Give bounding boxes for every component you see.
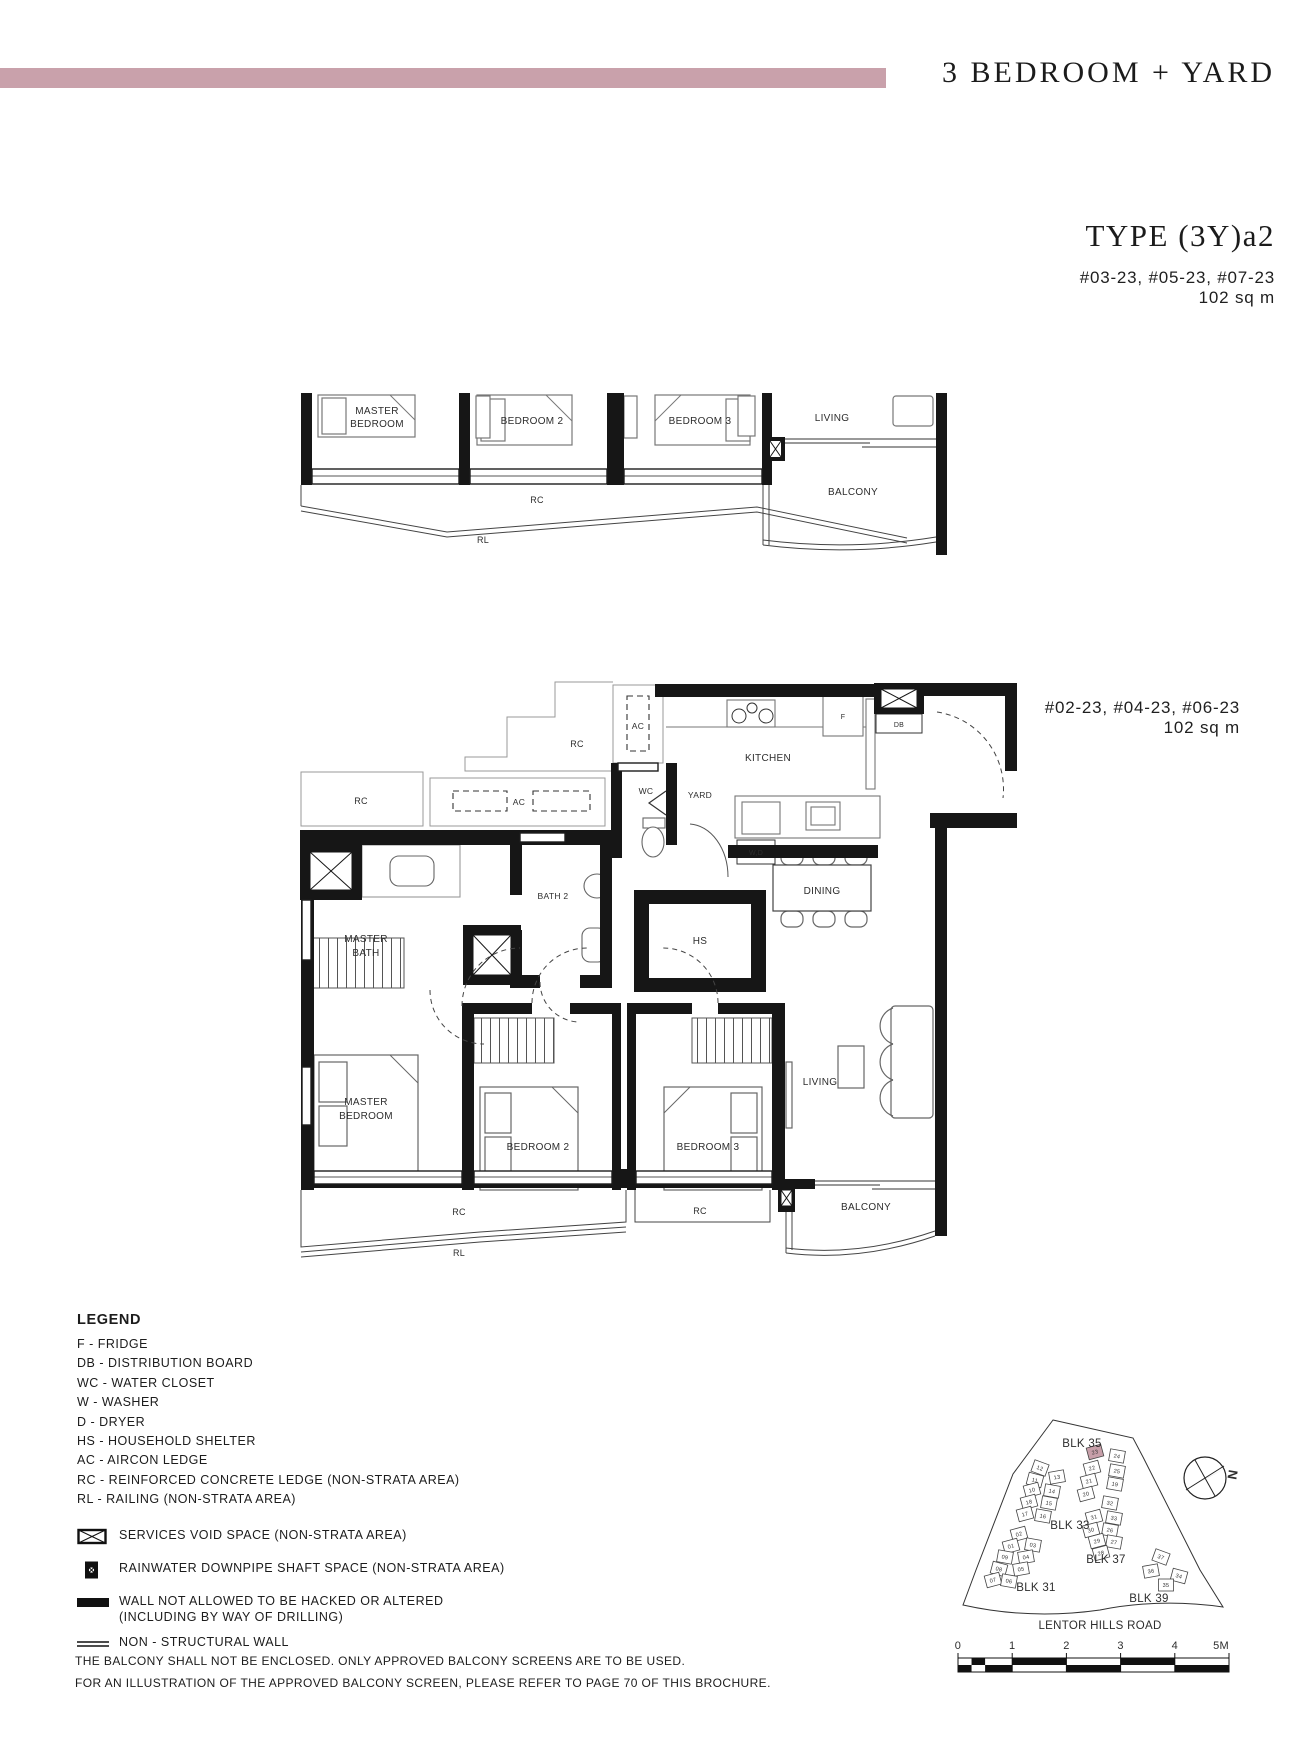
legend-item: AC - AIRCON LEDGE — [77, 1451, 697, 1470]
road-label: LENTOR HILLS ROAD — [1038, 1620, 1161, 1632]
label-top-master-1: MASTER — [355, 406, 398, 417]
scale-tick-label: 5M — [1213, 1640, 1229, 1652]
site-unit: 19 — [1107, 1477, 1124, 1491]
label-top-living: LIVING — [815, 413, 850, 424]
legend-symbol-label-line2: (INCLUDING BY WAY OF DRILLING) — [119, 1609, 443, 1625]
label-master-bath-1: MASTER — [344, 934, 387, 945]
legend-symbol-row: RAINWATER DOWNPIPE SHAFT SPACE (NON-STRA… — [77, 1560, 697, 1584]
label-balcony: BALCONY — [841, 1202, 891, 1213]
legend-symbol-label-line1: WALL NOT ALLOWED TO BE HACKED OR ALTERED — [119, 1593, 443, 1609]
footnote-line: FOR AN ILLUSTRATION OF THE APPROVED BALC… — [75, 1672, 771, 1694]
label-rc-box: RC — [354, 796, 368, 806]
legend: LEGEND F - FRIDGE DB - DISTRIBUTION BOAR… — [77, 1312, 697, 1667]
label-dining: DINING — [804, 886, 841, 897]
legend-item: RC - REINFORCED CONCRETE LEDGE (NON-STRA… — [77, 1471, 697, 1490]
hacked-wall-icon — [77, 1593, 119, 1617]
legend-item: HS - HOUSEHOLD SHELTER — [77, 1432, 697, 1451]
site-unit: 25 — [1109, 1464, 1126, 1478]
site-unit-number: 33 — [1110, 1515, 1118, 1522]
label-rc-left: RC — [452, 1207, 466, 1217]
site-unit-number: 27 — [1110, 1539, 1118, 1546]
north-compass-icon: N — [1184, 1457, 1241, 1499]
site-unit-number: 09 — [1001, 1554, 1009, 1561]
label-rc-right: RC — [693, 1206, 707, 1216]
label-washer-dryer: W,D — [749, 850, 763, 857]
site-unit-number: 13 — [1053, 1474, 1061, 1481]
legend-symbol-label: SERVICES VOID SPACE (NON-STRATA AREA) — [119, 1527, 407, 1543]
site-unit: 13 — [1049, 1470, 1066, 1484]
label-top-rl: RL — [477, 535, 489, 545]
scale-tick-label: 3 — [1117, 1640, 1123, 1652]
label-bath2: BATH 2 — [538, 891, 569, 901]
label-bedroom3: BEDROOM 3 — [677, 1142, 740, 1153]
site-unit-number: 16 — [1039, 1513, 1047, 1520]
site-unit: 21 — [1080, 1473, 1098, 1488]
label-kitchen: KITCHEN — [745, 753, 791, 764]
site-block-label: BLK 39 — [1129, 1593, 1169, 1605]
services-void-icon — [77, 1527, 119, 1551]
label-top-master-2: BEDROOM — [350, 419, 404, 430]
site-unit: 16 — [1035, 1509, 1052, 1523]
site-block-label: BLK 37 — [1086, 1554, 1126, 1566]
site-units: 2324222521192032313330262927283736343512… — [984, 1444, 1188, 1591]
label-master-bedroom-1: MASTER — [344, 1097, 387, 1108]
brochure-page: 3 BEDROOM + YARD TYPE (3Y)a2 #03-23, #05… — [0, 0, 1298, 1745]
site-unit: 17 — [1016, 1506, 1034, 1521]
legend-item: DB - DISTRIBUTION BOARD — [77, 1354, 697, 1373]
cropped-upper-floorplan: MASTER BEDROOM BEDROOM 2 BEDROOM 3 LIVIN… — [301, 393, 947, 555]
site-unit-number: 19 — [1111, 1481, 1119, 1488]
legend-symbol-row: SERVICES VOID SPACE (NON-STRATA AREA) — [77, 1527, 697, 1551]
label-bedroom2: BEDROOM 2 — [507, 1142, 570, 1153]
site-unit: 15 — [1041, 1496, 1058, 1510]
label-yard: YARD — [688, 790, 712, 800]
site-unit: 35 — [1159, 1579, 1174, 1591]
legend-item: WC - WATER CLOSET — [77, 1374, 697, 1393]
label-rc-step: RC — [570, 739, 584, 749]
legend-item: W - WASHER — [77, 1393, 697, 1412]
site-unit-number: 03 — [1029, 1542, 1037, 1549]
legend-symbol-label: RAINWATER DOWNPIPE SHAFT SPACE (NON-STRA… — [119, 1560, 505, 1576]
label-living: LIVING — [803, 1077, 838, 1088]
legend-item: RL - RAILING (NON-STRATA AREA) — [77, 1490, 697, 1509]
site-unit: 27 — [1106, 1535, 1123, 1549]
scale-tick-label: 4 — [1172, 1640, 1178, 1652]
site-unit: 36 — [1143, 1564, 1160, 1578]
legend-item: D - DRYER — [77, 1413, 697, 1432]
site-block-label: BLK 33 — [1050, 1520, 1090, 1532]
site-plan: 2324222521192032313330262927283736343512… — [955, 1420, 1241, 1672]
site-block-label: BLK 35 — [1062, 1438, 1102, 1450]
site-unit: 24 — [1109, 1449, 1126, 1463]
site-unit-number: 36 — [1147, 1568, 1155, 1575]
label-top-rc: RC — [530, 495, 544, 505]
legend-item: F - FRIDGE — [77, 1335, 697, 1354]
label-top-balcony: BALCONY — [828, 487, 878, 498]
site-unit: 03 — [1025, 1538, 1042, 1552]
site-unit: 09 — [997, 1550, 1014, 1564]
label-master-bedroom-2: BEDROOM — [339, 1111, 393, 1122]
label-wc: WC — [639, 786, 654, 796]
scale-tick-label: 0 — [955, 1640, 961, 1652]
site-unit: 05 — [1013, 1562, 1030, 1576]
label-ac-upper: AC — [632, 721, 644, 731]
scale-bar: 012345M — [955, 1640, 1229, 1672]
legend-symbol-label: WALL NOT ALLOWED TO BE HACKED OR ALTERED… — [119, 1593, 443, 1625]
label-rl: RL — [453, 1248, 465, 1258]
site-unit: 32 — [1102, 1496, 1119, 1510]
label-db: DB — [894, 722, 904, 729]
site-unit-number: 26 — [1106, 1527, 1114, 1534]
site-unit-number: 05 — [1017, 1566, 1025, 1573]
site-unit-number: 14 — [1048, 1488, 1056, 1495]
legend-symbol-label: NON - STRUCTURAL WALL — [119, 1634, 289, 1650]
rainwater-downpipe-icon — [77, 1560, 119, 1584]
site-unit-number: 25 — [1113, 1468, 1121, 1475]
site-unit-number: 24 — [1113, 1453, 1121, 1460]
label-top-bedroom2: BEDROOM 2 — [501, 416, 564, 427]
site-unit-number: 32 — [1106, 1500, 1114, 1507]
legend-title: LEGEND — [77, 1312, 697, 1328]
footnotes: THE BALCONY SHALL NOT BE ENCLOSED. ONLY … — [75, 1650, 771, 1694]
footnote-line: THE BALCONY SHALL NOT BE ENCLOSED. ONLY … — [75, 1650, 771, 1672]
site-unit: 06 — [1001, 1574, 1018, 1588]
site-unit-number: 06 — [1005, 1578, 1013, 1585]
label-master-bath-2: BATH — [352, 948, 379, 959]
site-unit-number: 15 — [1045, 1500, 1053, 1507]
site-unit-number: 04 — [1022, 1554, 1030, 1561]
site-unit: 22 — [1083, 1460, 1101, 1475]
label-hs: HS — [693, 936, 708, 947]
site-unit: 37 — [1152, 1549, 1170, 1565]
legend-symbol-row: WALL NOT ALLOWED TO BE HACKED OR ALTERED… — [77, 1593, 697, 1625]
label-fridge: F — [841, 714, 846, 721]
north-label: N — [1224, 1469, 1240, 1481]
site-unit: 07 — [984, 1572, 1002, 1587]
label-top-bedroom3: BEDROOM 3 — [669, 416, 732, 427]
label-ac-ledge: AC — [513, 797, 525, 807]
scale-tick-label: 2 — [1063, 1640, 1069, 1652]
site-unit: 20 — [1077, 1486, 1095, 1501]
site-block-label: BLK 31 — [1016, 1582, 1056, 1594]
site-unit-number: 35 — [1163, 1583, 1170, 1589]
site-unit: 33 — [1106, 1511, 1123, 1525]
main-floorplan: KITCHEN YARD WC DB F W,D AC AC RC RC BAT… — [300, 682, 1017, 1258]
scale-tick-label: 1 — [1009, 1640, 1015, 1652]
